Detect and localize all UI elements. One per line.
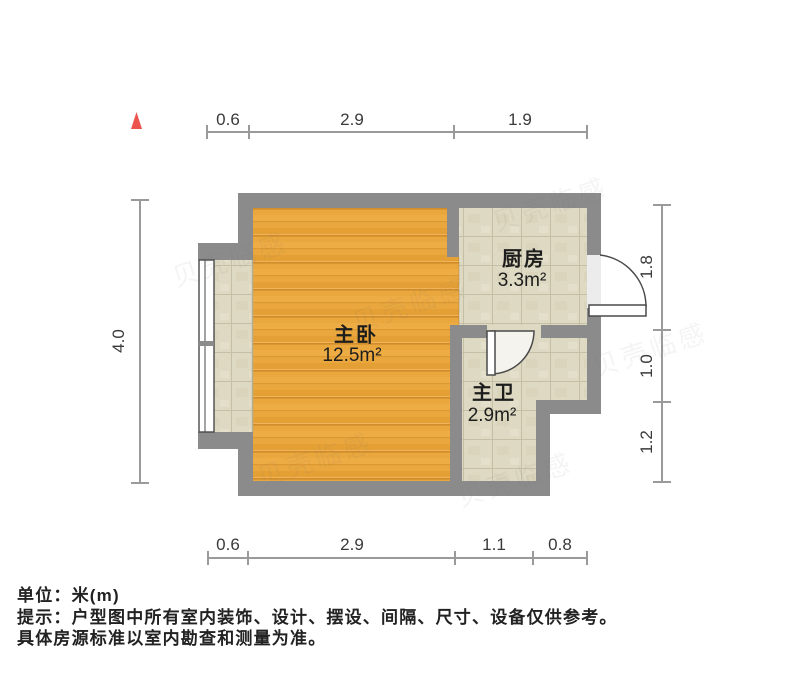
wall-top	[238, 193, 601, 208]
dim-bottom-1: 0.6	[216, 535, 240, 555]
wall-right-lower	[587, 308, 601, 414]
wall-kitchen-stub	[447, 208, 459, 257]
wall-right-upper	[587, 193, 601, 255]
dim-top-3: 1.9	[508, 110, 532, 130]
wall-step-top	[198, 243, 253, 260]
entrance-opening	[587, 255, 601, 308]
footer-notes: 单位：米(m) 提示：户型图中所有室内装饰、设计、摆设、间隔、尺寸、设备仅供参考…	[17, 585, 787, 650]
bathroom-door-leaf	[487, 331, 495, 375]
balcony-floor	[214, 260, 253, 432]
wall-step-bottom	[198, 432, 253, 449]
dim-bottom-3: 1.1	[482, 535, 506, 555]
disclaimer-line1: 提示：户型图中所有室内装饰、设计、摆设、间隔、尺寸、设备仅供参考。	[17, 607, 787, 629]
dim-right-2: 1.0	[637, 354, 657, 378]
north-indicator-icon	[131, 112, 142, 129]
disclaimer-line2: 具体房源标准以室内勘查和测量为准。	[17, 628, 787, 650]
dim-bottom-4: 0.8	[548, 535, 572, 555]
kitchen-label: 厨房	[502, 243, 546, 272]
floor-plan: 贝壳临感 贝壳临感 贝壳临感 贝壳临感 贝壳临感 贝壳临感 0.6 2.9 1.…	[0, 0, 800, 570]
window	[199, 260, 214, 432]
unit-note: 单位：米(m)	[17, 585, 787, 607]
wall-divider-right	[541, 325, 601, 338]
dimension-line-left	[131, 200, 149, 483]
dim-right-3: 1.2	[637, 430, 657, 454]
wall-bottom	[238, 481, 550, 496]
dimension-line-bottom	[208, 551, 587, 565]
dim-left-1: 4.0	[109, 329, 129, 353]
floor-plan-drawing	[0, 0, 800, 570]
wall-left-lower	[238, 449, 253, 496]
bathroom-area: 2.9m²	[468, 405, 517, 427]
dim-top-1: 0.6	[216, 110, 240, 130]
entrance-door-leaf	[589, 305, 646, 316]
bedroom-area: 12.5m²	[322, 345, 381, 367]
bedroom-label: 主卧	[334, 319, 378, 348]
dim-right-1: 1.8	[637, 255, 657, 279]
kitchen-area: 3.3m²	[498, 270, 547, 292]
wall-left-upper	[238, 193, 253, 243]
wall-bath-partition	[450, 325, 462, 481]
dim-top-2: 2.9	[340, 110, 364, 130]
bathroom-label: 主卫	[472, 377, 516, 406]
dim-bottom-2: 2.9	[340, 535, 364, 555]
